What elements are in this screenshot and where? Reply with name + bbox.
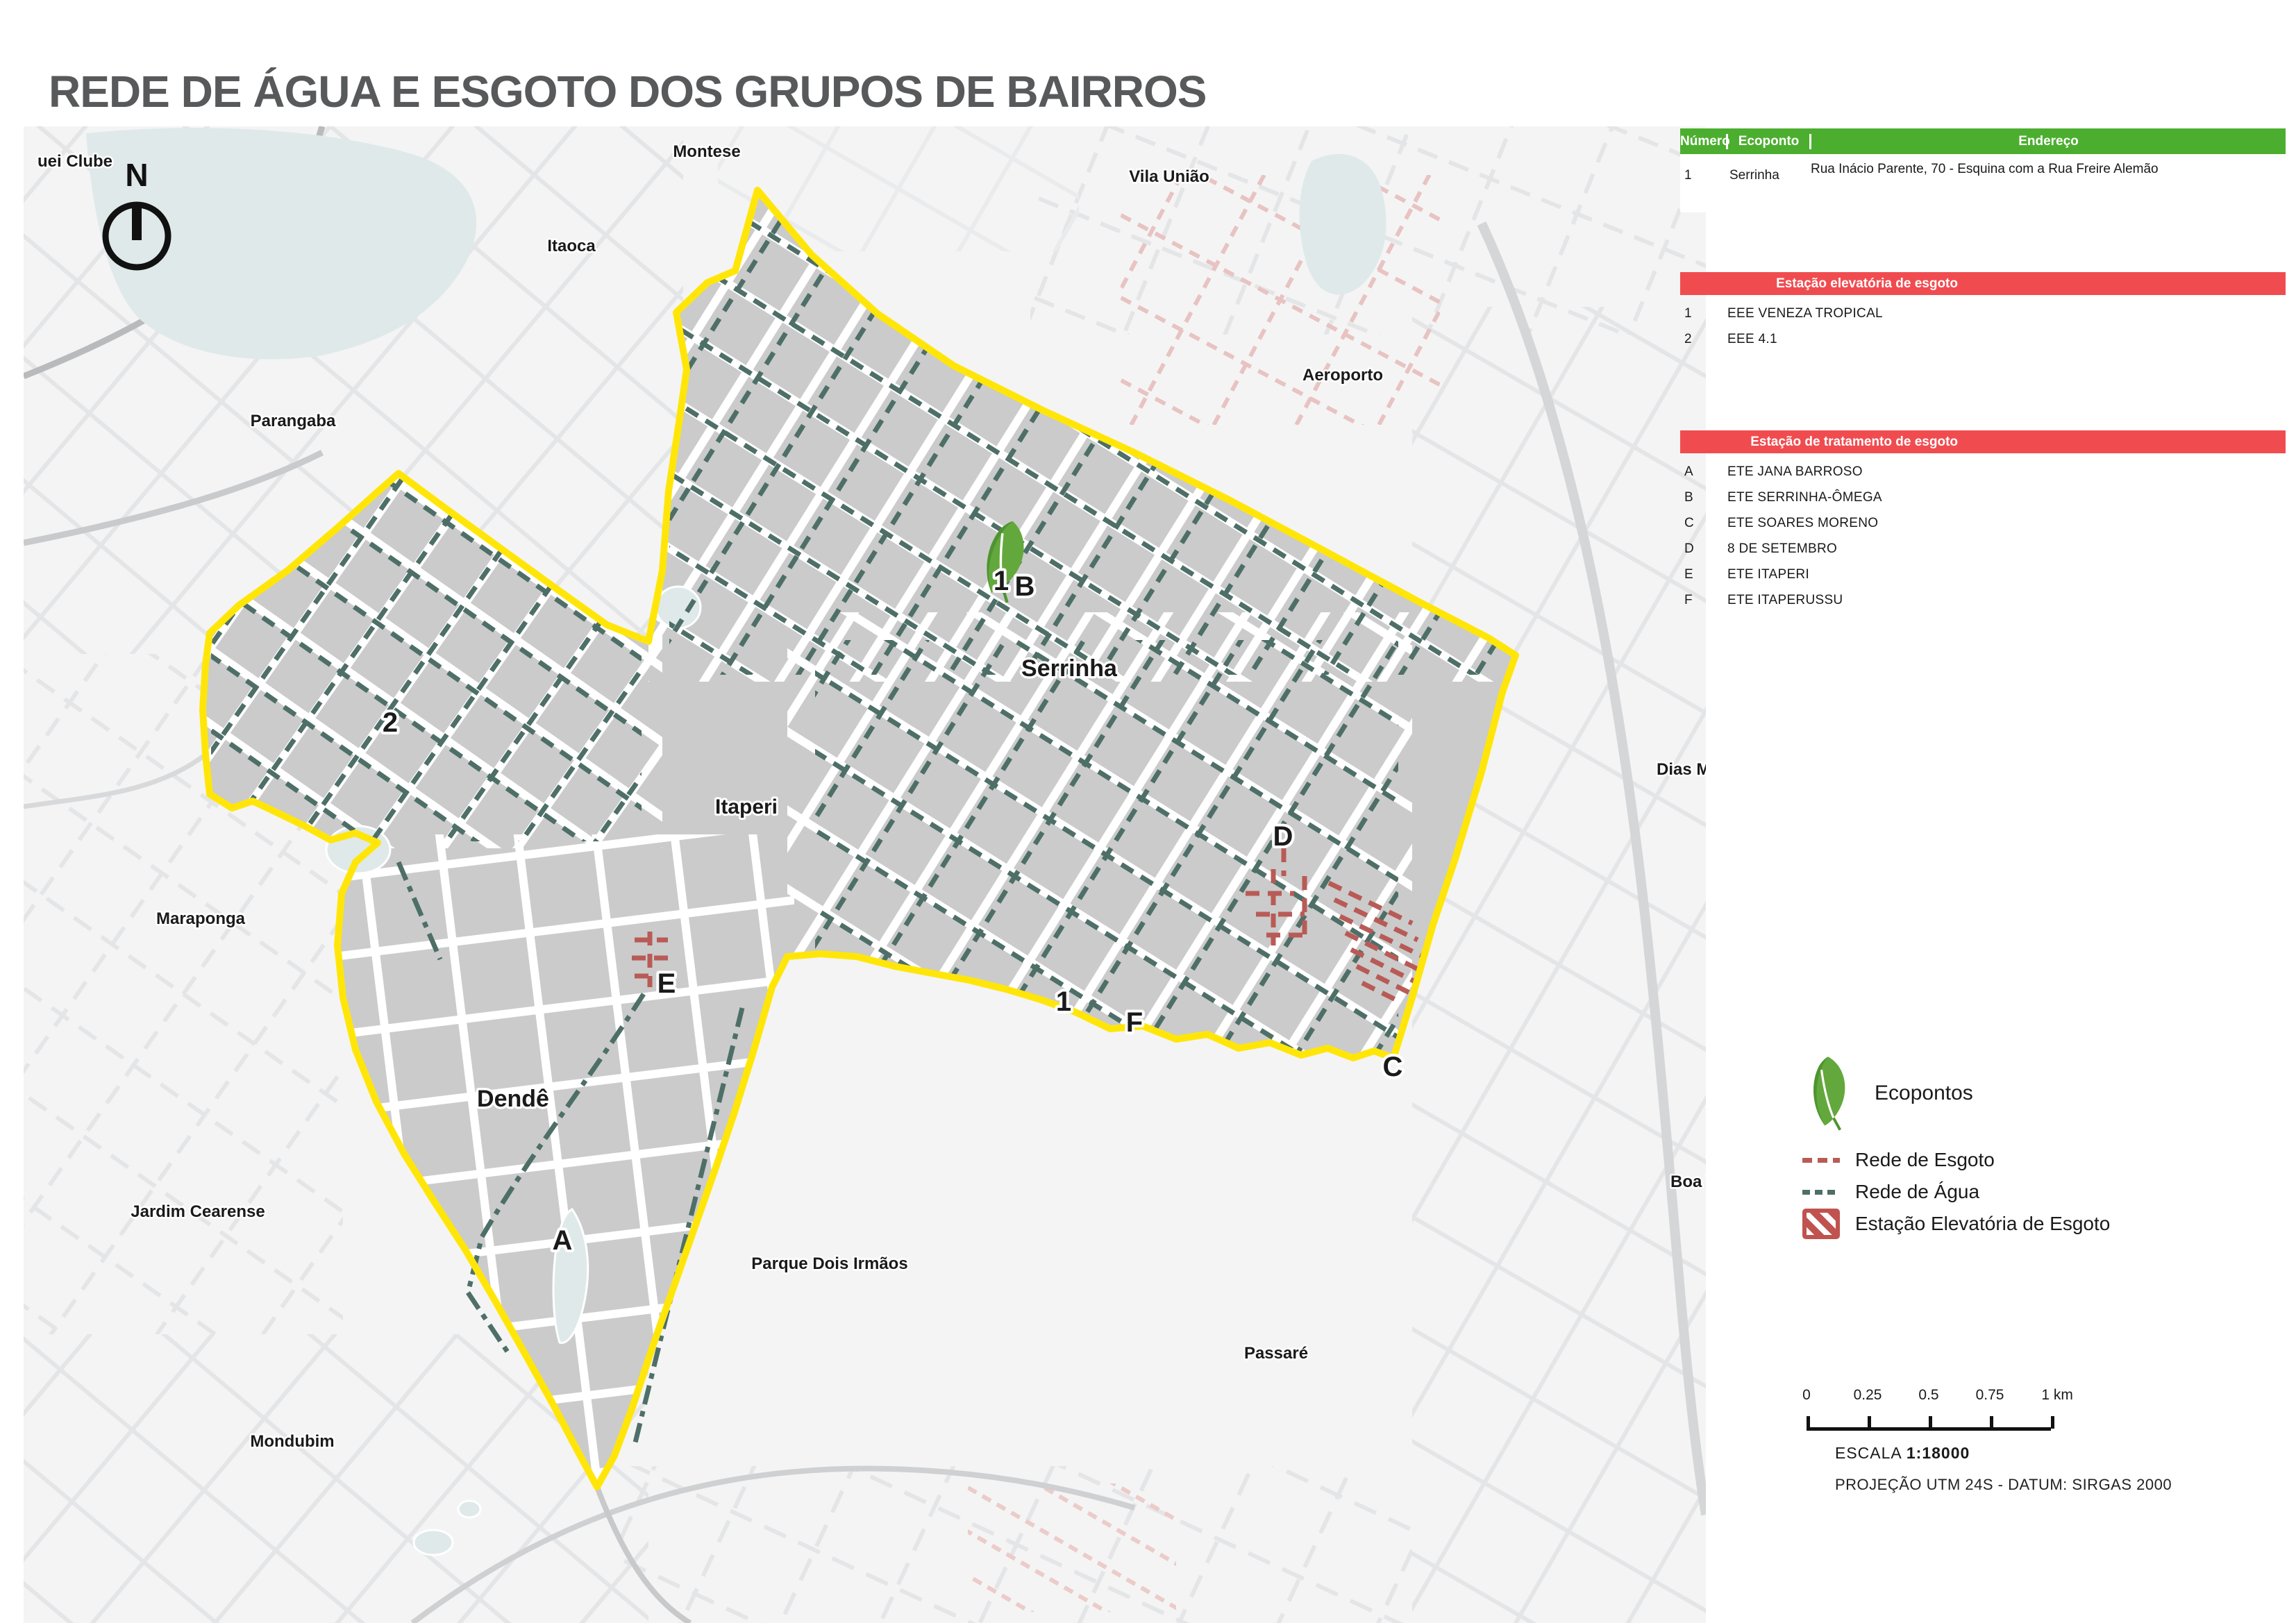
map-marker-1: 1	[1056, 986, 1071, 1017]
station-id: C	[1680, 516, 1727, 531]
map-label-aeroporto: Aeroporto	[1302, 366, 1383, 385]
scale-value: 1:18000	[1907, 1444, 1970, 1462]
station-id: 1	[1680, 306, 1727, 321]
table-cell: Serrinha	[1726, 154, 1807, 212]
legend-item-label: Estação Elevatória de Esgoto	[1855, 1213, 2110, 1235]
side-panel	[1706, 0, 2296, 1623]
map-label-maraponga: Maraponga	[156, 909, 246, 928]
table-row: 1SerrinhaRua Inácio Parente, 70 - Esquin…	[1680, 154, 2286, 212]
poster-page: REDE DE ÁGUA E ESGOTO DOS GRUPOS DE BAIR…	[0, 0, 2296, 1623]
map-label-uei-clube: uei Clube	[37, 152, 112, 171]
eee-section-title: Estação elevatória de esgoto	[1680, 272, 2286, 295]
map-label-vila-uni-o: Vila União	[1129, 167, 1209, 186]
map-label-boa-vi: Boa Vi	[1670, 1172, 1706, 1191]
eee-rows: 1EEE VENEZA TROPICAL2EEE 4.1	[1680, 295, 2286, 352]
ete-rows: AETE JANA BARROSOBETE SERRINHA-ÔMEGACETE…	[1680, 453, 2286, 613]
station-name: ETE SERRINHA-ÔMEGA	[1727, 490, 2286, 505]
map-marker-b: B	[1015, 571, 1035, 602]
station-id: 2	[1680, 332, 1727, 347]
ete-section: Estação de tratamento de esgoto AETE JAN…	[1680, 430, 2286, 613]
map-label-jardim-cearense: Jardim Cearense	[131, 1202, 265, 1221]
map-marker-2: 2	[383, 707, 398, 738]
list-item: FETE ITAPERUSSU	[1680, 587, 2286, 613]
hatch-box-icon	[1802, 1209, 1840, 1239]
station-name: EEE 4.1	[1727, 332, 2286, 347]
station-name: ETE SOARES MORENO	[1727, 516, 2286, 531]
scale-tick-label: 0.75	[1976, 1387, 2004, 1404]
map-canvas[interactable]: uei ClubeMonteseVila UniãoItaocaAeroport…	[24, 126, 1706, 1623]
scale-tick	[1929, 1416, 1932, 1429]
legend-item: Rede de Esgoto	[1802, 1144, 2233, 1176]
scale-tick	[2051, 1416, 2054, 1429]
list-item: AETE JANA BARROSO	[1680, 459, 2286, 485]
dash-teal-icon	[1802, 1190, 1840, 1195]
map-svg[interactable]: uei ClubeMonteseVila UniãoItaocaAeroport…	[24, 126, 1706, 1623]
station-id: F	[1680, 593, 1727, 608]
scale-tick	[1868, 1416, 1871, 1429]
page-title: REDE DE ÁGUA E ESGOTO DOS GRUPOS DE BAIR…	[49, 66, 1206, 117]
map-marker-a: A	[553, 1225, 573, 1256]
ecopontos-table-header: NúmeroEcopontoEndereço	[1680, 128, 2286, 154]
ecopontos-table: NúmeroEcopontoEndereço 1SerrinhaRua Inác…	[1680, 128, 2286, 212]
map-label-dias-mac: Dias Mac	[1657, 760, 1706, 779]
map-label-passar-: Passaré	[1244, 1344, 1308, 1363]
map-marker-1: 1	[994, 566, 1009, 596]
map-label-parangaba: Parangaba	[251, 412, 336, 430]
scale-tick-label: 1 km	[2041, 1387, 2073, 1404]
scale-text: ESCALA 1:18000	[1835, 1444, 1970, 1463]
station-id: B	[1680, 490, 1727, 505]
table-cell: Rua Inácio Parente, 70 - Esquina com a R…	[1807, 154, 2286, 212]
ecopontos-table-body: 1SerrinhaRua Inácio Parente, 70 - Esquin…	[1680, 154, 2286, 212]
list-item: EETE ITAPERI	[1680, 562, 2286, 587]
table-cell: 1	[1680, 154, 1726, 212]
north-label: N	[125, 157, 148, 193]
map-label-itaperi: Itaperi	[715, 796, 778, 818]
station-name: ETE JANA BARROSO	[1727, 464, 2286, 480]
map-label-parque-dois-irm-os: Parque Dois Irmãos	[751, 1254, 907, 1273]
scale-tick-label: 0.5	[1918, 1387, 1938, 1404]
ete-section-title: Estação de tratamento de esgoto	[1680, 430, 2286, 453]
scale-bar: 00.250.50.751 km	[1807, 1387, 2098, 1436]
station-id: D	[1680, 541, 1727, 557]
list-item: D8 DE SETEMBRO	[1680, 536, 2286, 562]
station-name: EEE VENEZA TROPICAL	[1727, 306, 2286, 321]
map-label-mondubim: Mondubim	[250, 1432, 334, 1451]
scale-tick-label: 0.25	[1854, 1387, 1882, 1404]
map-marker-f: F	[1126, 1007, 1143, 1038]
legend-item-label: Rede de Esgoto	[1855, 1149, 1995, 1171]
station-name: ETE ITAPERI	[1727, 567, 2286, 582]
legend-item: Estação Elevatória de Esgoto	[1802, 1208, 2233, 1240]
legend-items: Rede de EsgotoRede de ÁguaEstação Elevat…	[1802, 1144, 2233, 1240]
leaf-icon	[1802, 1052, 1854, 1134]
ecopontos-col-header: Número	[1680, 134, 1728, 149]
dash-red-icon	[1802, 1158, 1840, 1163]
map-label-montese: Montese	[673, 142, 740, 161]
legend-ecopontos-row: Ecopontos	[1802, 1052, 2233, 1134]
list-item: 1EEE VENEZA TROPICAL	[1680, 301, 2286, 326]
projection-text: PROJEÇÃO UTM 24S - DATUM: SIRGAS 2000	[1835, 1476, 2172, 1494]
scale-tick	[1807, 1416, 1810, 1429]
scale-tick	[1990, 1416, 1993, 1429]
map-label-itaoca: Itaoca	[547, 237, 596, 255]
station-name: ETE ITAPERUSSU	[1727, 593, 2286, 608]
ecopontos-col-header: Ecoponto	[1728, 134, 1811, 149]
station-id: A	[1680, 464, 1727, 480]
legend-item-label: Rede de Água	[1855, 1181, 1979, 1203]
map-label-serrinha: Serrinha	[1021, 655, 1118, 682]
list-item: 2EEE 4.1	[1680, 326, 2286, 352]
map-marker-c: C	[1383, 1052, 1403, 1082]
map-marker-e: E	[657, 968, 676, 999]
eee-section: Estação elevatória de esgoto 1EEE VENEZA…	[1680, 272, 2286, 352]
list-item: BETE SERRINHA-ÔMEGA	[1680, 485, 2286, 510]
scale-label: ESCALA	[1835, 1444, 1902, 1462]
legend: Ecopontos Rede de EsgotoRede de ÁguaEsta…	[1802, 1052, 2233, 1240]
ecopontos-col-header: Endereço	[1811, 134, 2286, 149]
map-marker-d: D	[1273, 821, 1293, 852]
map-label-dend-: Dendê	[477, 1086, 549, 1112]
station-id: E	[1680, 567, 1727, 582]
scale-tick-label: 0	[1802, 1387, 1811, 1404]
station-name: 8 DE SETEMBRO	[1727, 541, 2286, 557]
list-item: CETE SOARES MORENO	[1680, 510, 2286, 536]
legend-ecopontos-label: Ecopontos	[1875, 1082, 1973, 1105]
legend-item: Rede de Água	[1802, 1176, 2233, 1208]
